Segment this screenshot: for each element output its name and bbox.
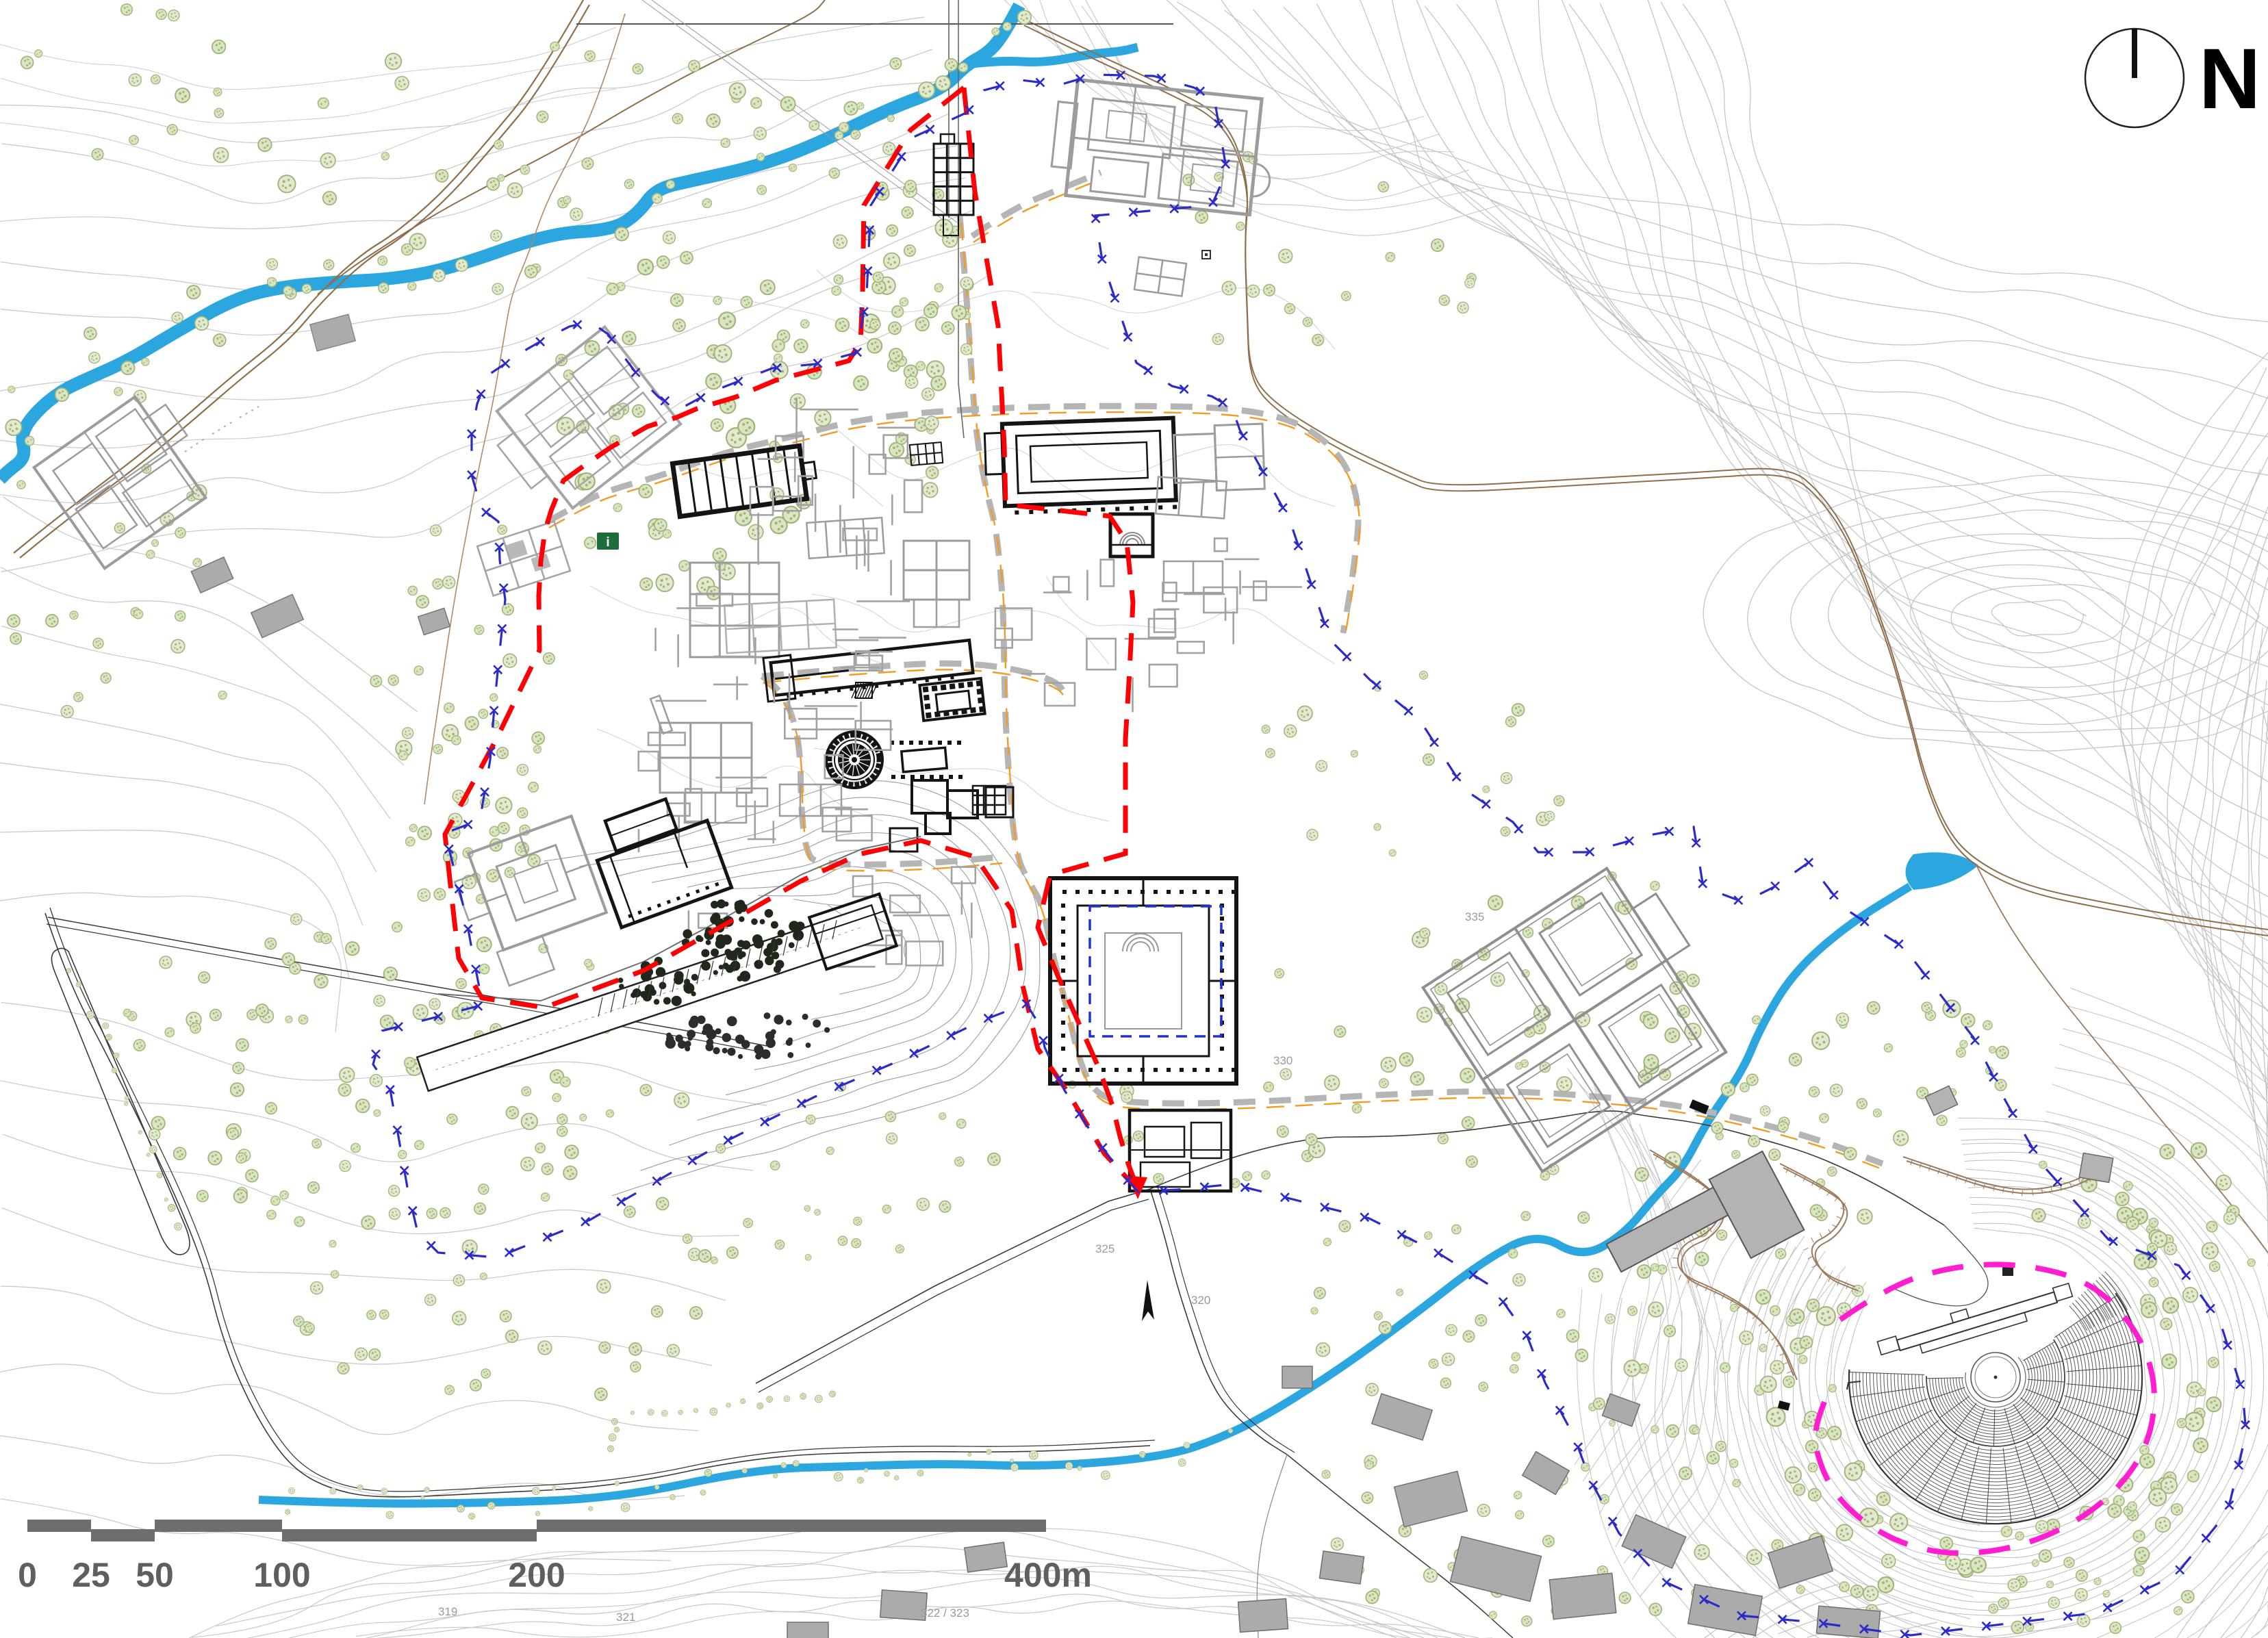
svg-text:200: 200 <box>508 1556 565 1594</box>
svg-text:400m: 400m <box>1004 1556 1092 1594</box>
svg-text:N: N <box>2199 31 2260 127</box>
svg-text:0: 0 <box>18 1556 37 1594</box>
svg-text:330: 330 <box>1273 1054 1292 1067</box>
svg-text:100: 100 <box>253 1556 310 1594</box>
svg-text:322 / 323: 322 / 323 <box>921 1607 969 1620</box>
svg-text:25: 25 <box>72 1556 110 1594</box>
svg-text:325: 325 <box>1095 1242 1114 1255</box>
svg-text:320: 320 <box>1191 1294 1210 1307</box>
svg-text:319: 319 <box>438 1605 457 1618</box>
svg-text:50: 50 <box>136 1556 174 1594</box>
svg-text:i: i <box>606 535 609 550</box>
svg-text:335: 335 <box>1465 910 1484 923</box>
svg-text:321: 321 <box>616 1611 635 1624</box>
